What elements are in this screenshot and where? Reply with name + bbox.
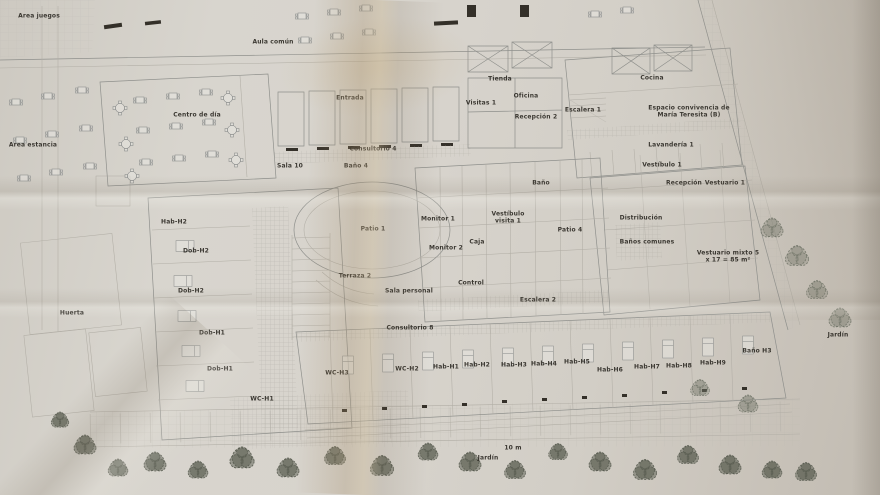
plan-label: Sala 10 [277, 164, 303, 171]
plan-label: Escalera 1 [565, 108, 601, 115]
plan-label: Consultorio 8 [386, 326, 433, 333]
plan-label: WC-H3 [325, 371, 349, 378]
plan-label: Monitor 2 [429, 246, 463, 253]
plan-label: 10 m [504, 446, 521, 453]
plan-label: Hab-H9 [700, 361, 726, 368]
plan-label: Jardín [478, 456, 499, 463]
plan-label: Consultorio 4 [349, 147, 396, 154]
plan-label: Hab-H7 [634, 365, 660, 372]
plan-label: Sala personal [385, 289, 433, 296]
plan-label: Baño H3 [742, 349, 771, 356]
plan-label: Dob-H2 [178, 289, 204, 296]
floorplan-photo: Área juegosAula comúnTiendaEntradaVisita… [0, 0, 880, 495]
plan-label: Patio 4 [558, 228, 583, 235]
plan-label: Hab-H1 [433, 365, 459, 372]
plan-label: WC-H1 [250, 397, 274, 404]
plan-label: Oficina [514, 94, 539, 101]
plan-label: Hab-H3 [501, 363, 527, 370]
plan-label: Escalera 2 [520, 298, 556, 305]
plan-label: Hab-H2 [161, 220, 187, 227]
plan-label: Centro de día [173, 113, 221, 120]
plan-label: Aula común [252, 40, 293, 47]
plan-label: Recepción 2 [515, 115, 558, 122]
plan-label: Vestuario 1 [705, 181, 745, 188]
plan-label: Tienda [488, 77, 512, 84]
plan-label: Lavandería 1 [648, 143, 694, 150]
plan-label: Vestíbulo 1 [642, 163, 682, 170]
plan-label: Baño 4 [344, 164, 368, 171]
plan-label: Cocina [640, 76, 663, 83]
plan-label: Baño [532, 181, 550, 188]
plan-label: Hab-H2 [464, 363, 490, 370]
plan-label: Monitor 1 [421, 217, 455, 224]
plan-label: Espacio convivencia de María Teresita (B… [646, 105, 732, 118]
plan-label: Dob-H1 [207, 367, 233, 374]
plan-label: Jardín [828, 333, 849, 340]
plan-label: Dob-H2 [183, 249, 209, 256]
plan-label: Distribución [620, 216, 663, 223]
plan-label: Patio 1 [361, 227, 386, 234]
plan-label: Control [458, 281, 484, 288]
plan-label: Visitas 1 [466, 101, 496, 108]
plan-label: Entrada [336, 96, 364, 103]
plan-label: Baños comunes [620, 240, 675, 247]
plan-label: Área estancia [9, 143, 57, 150]
plan-label: Hab-H6 [597, 368, 623, 375]
labels-layer: Área juegosAula comúnTiendaEntradaVisita… [0, 0, 880, 495]
plan-label: Hab-H5 [564, 360, 590, 367]
plan-label: Caja [469, 240, 484, 247]
plan-label: Dob-H1 [199, 331, 225, 338]
plan-label: Huerta [60, 311, 84, 318]
plan-label: Recepción [666, 181, 702, 188]
plan-label: Vestuario mixto 5 x 17 = 85 m² [696, 250, 760, 263]
plan-label: WC-H2 [395, 367, 419, 374]
plan-label: Área juegos [18, 14, 60, 21]
plan-label: Vestíbulo visita 1 [487, 211, 529, 224]
plan-label: Hab-H4 [531, 362, 557, 369]
plan-label: Terraza 2 [338, 274, 372, 281]
plan-label: Hab-H8 [666, 364, 692, 371]
